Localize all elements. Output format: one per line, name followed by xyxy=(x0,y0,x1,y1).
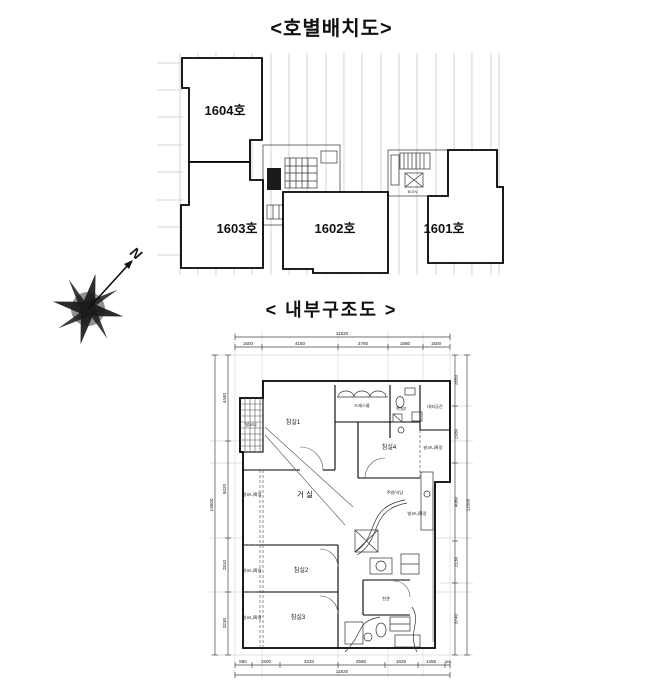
dim-top-total: 11820 xyxy=(336,331,349,336)
unit-1603-outline xyxy=(181,162,263,268)
room-entrance: 현관 xyxy=(382,595,390,601)
room-evac: 대피공간 xyxy=(427,403,443,410)
floor-plan-diagram: 11820 1500 4160 2780 1880 1500 960 1500 … xyxy=(205,322,480,697)
elevator-label: ELEV. xyxy=(408,189,419,194)
page: <호별배치도> xyxy=(0,0,663,700)
dim-bot-5: 1455 xyxy=(426,659,437,664)
room-dressroom: 드레스룸 xyxy=(354,402,370,409)
room-bedroom3: 침실3 xyxy=(291,613,306,621)
unit-1604-label: 1604호 xyxy=(205,103,246,118)
dim-left-total: 13500 xyxy=(209,498,214,511)
dim-bot-2: 3220 xyxy=(304,659,315,664)
room-kitchen: 주방/식당 xyxy=(387,489,404,496)
room-balcony-ext-l1: 발코니확장 xyxy=(242,491,261,498)
floor-plan-title: < 내부구조도 > xyxy=(0,296,663,322)
core-right: ELEV. xyxy=(388,150,448,196)
dim-top-0: 1500 xyxy=(243,341,254,346)
compass-north-label: N xyxy=(127,244,146,263)
unit-1602-label: 1602호 xyxy=(315,221,356,236)
dim-right-2: 4060 xyxy=(454,496,459,507)
dim-top-4: 1500 xyxy=(431,341,442,346)
dim-right-total: 11500 xyxy=(466,498,471,511)
room-bedroom1: 침실1 xyxy=(286,418,301,426)
room-balcony-ext-l2: 발코니확장 xyxy=(242,567,261,574)
dim-right-1: 2930 xyxy=(454,428,459,439)
dim-right-3: 2130 xyxy=(454,556,459,567)
unit-1603-label: 1603호 xyxy=(217,221,258,236)
room-balcony-ext-l3: 발코니확장 xyxy=(242,614,261,621)
room-bath2: 욕실2 xyxy=(396,405,407,412)
dim-left-0: 4440 xyxy=(222,392,227,403)
dim-right-4: 3740 xyxy=(454,613,459,624)
unit-layout-diagram: ELEV. 1604호 1603호 1602호 1601호 xyxy=(155,45,515,285)
dim-bot-6: 300 xyxy=(445,659,452,664)
dim-bot-4: 1825 xyxy=(396,659,407,664)
dim-bot-3: 2560 xyxy=(356,659,367,664)
room-balcony: 발코니 xyxy=(245,421,257,428)
room-balcony-ext-r2: 발코니확장 xyxy=(407,510,426,517)
dim-bot-total: 11820 xyxy=(336,669,349,674)
dim-left-3: 3230 xyxy=(222,617,227,628)
dim-top-3: 1880 xyxy=(400,341,411,346)
room-bedroom4: 침실4 xyxy=(382,443,397,451)
dim-bot-0: 960 xyxy=(239,659,247,664)
room-living: 거 실 xyxy=(297,489,313,499)
unit-1601-outline xyxy=(428,150,503,263)
room-balcony-ext-r1: 발코니확장 xyxy=(423,444,442,451)
dim-top-1: 4160 xyxy=(295,341,306,346)
room-bedroom2: 침실2 xyxy=(294,566,309,574)
dim-right-0: 2650 xyxy=(454,374,459,385)
dim-bot-1: 1500 xyxy=(261,659,272,664)
unit-1601-label: 1601호 xyxy=(424,221,465,236)
dim-left-1: 5020 xyxy=(222,483,227,494)
dim-left-2: 2810 xyxy=(222,559,227,570)
dim-top-2: 2780 xyxy=(358,341,369,346)
unit-layout-title: <호별배치도> xyxy=(0,12,663,41)
